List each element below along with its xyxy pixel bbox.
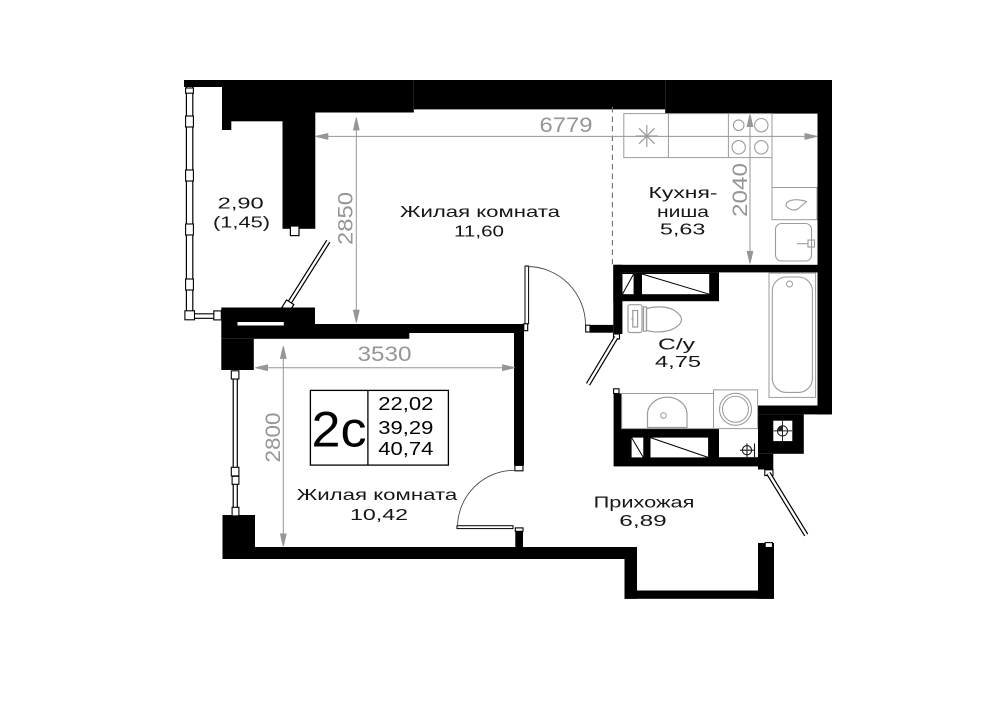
svg-text:2,90: 2,90 [218, 196, 264, 213]
svg-text:Прихожая: Прихожая [594, 495, 695, 512]
svg-text:Жилая комната: Жилая комната [400, 204, 560, 221]
svg-text:(1,45): (1,45) [213, 215, 270, 232]
svg-text:2850: 2850 [334, 192, 357, 245]
svg-text:2040: 2040 [729, 163, 752, 217]
svg-text:11,60: 11,60 [454, 223, 504, 240]
svg-text:6779: 6779 [540, 114, 593, 137]
svg-text:22,02: 22,02 [378, 394, 433, 414]
svg-text:2с: 2с [312, 402, 367, 458]
svg-text:3530: 3530 [358, 343, 412, 366]
svg-text:5,63: 5,63 [660, 222, 706, 239]
svg-text:39,29: 39,29 [378, 418, 433, 438]
svg-text:2800: 2800 [262, 413, 285, 463]
svg-text:С/у: С/у [658, 337, 695, 354]
svg-text:Жилая комната: Жилая комната [297, 487, 458, 504]
svg-text:6,89: 6,89 [619, 513, 667, 530]
svg-text:4,75: 4,75 [655, 354, 701, 371]
svg-text:10,42: 10,42 [350, 507, 408, 524]
svg-text:ниша: ниша [657, 204, 709, 221]
svg-text:Кухня-: Кухня- [649, 185, 718, 202]
svg-text:40,74: 40,74 [378, 439, 433, 459]
